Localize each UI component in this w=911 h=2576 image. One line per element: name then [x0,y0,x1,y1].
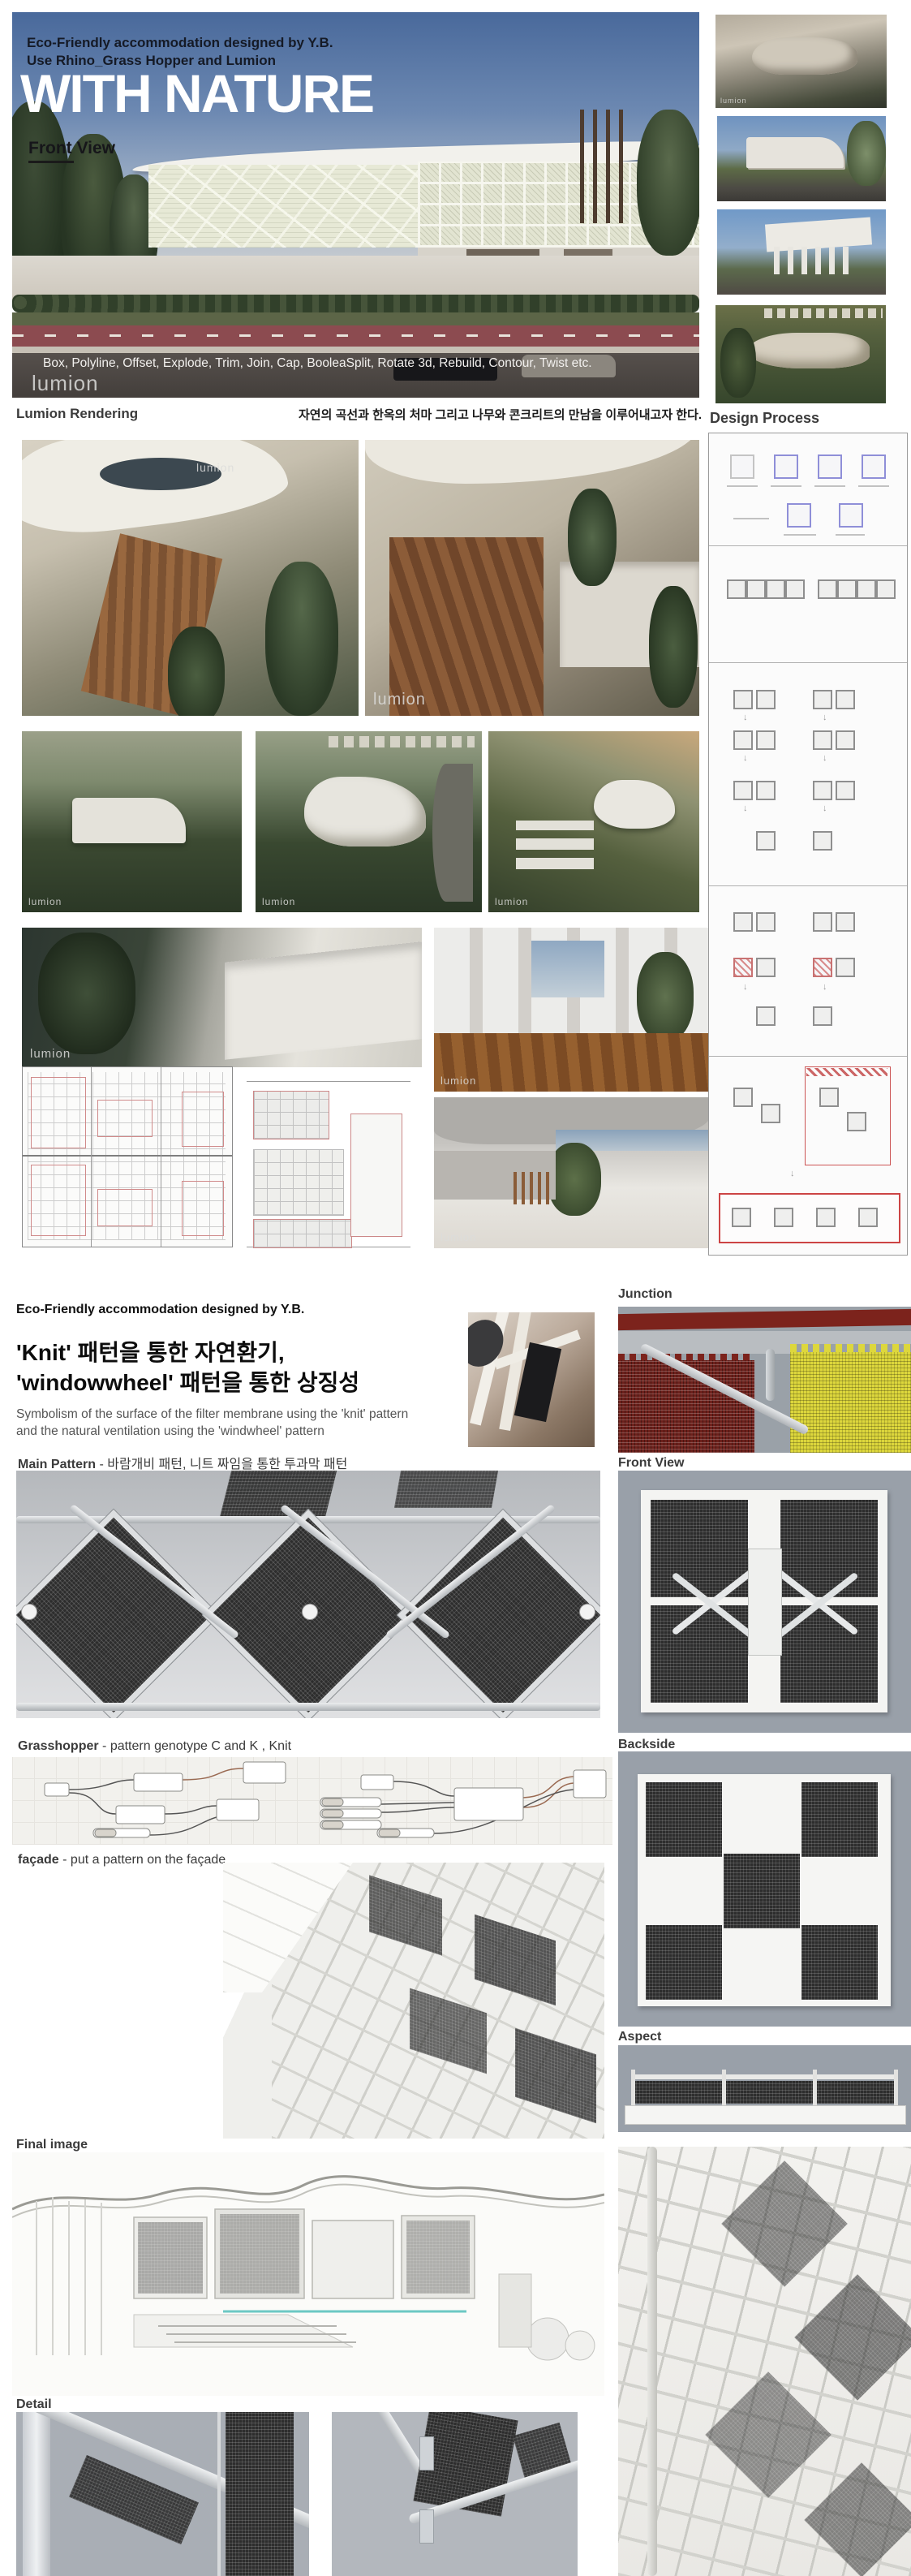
bottom-tube [16,1703,600,1711]
process-step-box [756,730,776,750]
process-step-box-hatched [733,958,753,977]
process-step-box [785,579,805,599]
front-view-section-label: Front View [618,1456,685,1471]
process-step-box [732,1208,751,1227]
process-step-box [813,912,832,932]
process-step-box [819,1088,839,1107]
junction-image [618,1307,911,1453]
render-aerial-canopy-1: lumion [22,440,359,716]
thumb-render-aerial-dusk: lumion [715,15,887,108]
section-divider [709,545,907,546]
white-building [72,798,186,843]
thumb-render-colonnade [717,209,886,295]
lumion-watermark: lumion [196,461,234,474]
lumion-watermark: lumion [32,371,99,396]
tree [168,627,225,716]
thumb-render-road-view [717,116,886,201]
base-slab [625,2105,906,2125]
bike-lane-dashes [12,334,699,337]
process-step-box [730,454,754,479]
front-view-label: Front View [28,139,115,158]
red-outline-zone [31,1077,86,1148]
backside-label: Backside [618,1738,675,1752]
divider [23,1155,232,1157]
process-step-box [733,1088,753,1107]
road-curve [432,764,473,902]
thumb3-columns [774,247,855,274]
red-outline-zone [97,1189,153,1226]
process-step-box [836,730,855,750]
node-ball [302,1604,318,1620]
knit-top-panel [220,1471,337,1518]
cylinder-column [23,2412,50,2576]
tree [38,933,135,1054]
process-step-box [733,730,753,750]
lumion-watermark: lumion [373,691,426,709]
caption-bar [858,485,889,487]
lumion-rendering-caption: 자연의 곡선과 한옥의 처마 그리고 나무와 콘크리트의 만남을 이루어내고자 … [299,406,702,423]
palm [473,1394,546,1447]
facade-closeup-tall-image [618,2147,911,2576]
knit-mesh-yellow [790,1352,911,1453]
facade-label-bold: façade [18,1853,59,1867]
render-aerial-forest-2: lumion [256,731,482,912]
caption-bar [836,534,865,536]
curb [12,347,699,353]
down-arrow-icon: ↓ [743,753,748,763]
bolt-plate [419,2509,434,2544]
grasshopper-canvas [12,1757,612,1845]
tree [637,110,699,256]
process-step-box [818,454,842,479]
process-step-box [836,690,855,709]
detail-label: Detail [16,2397,52,2412]
main-pattern-label-rest: - 바람개비 패턴, 니트 짜임을 통한 투과막 패턴 [96,1458,347,1471]
tree [847,121,886,186]
lumion-watermark: lumion [495,896,528,907]
yellow-top-row [790,1344,911,1352]
post [894,2070,898,2105]
main-pattern-label-bold: Main Pattern [18,1458,96,1471]
canopy [22,440,291,543]
knit-cell [646,1925,722,2000]
top-rail [633,2074,896,2079]
knit-cell [801,1925,878,2000]
post [722,2070,726,2105]
process-step-box [813,831,832,851]
lumion-watermark: lumion [28,896,62,907]
knit-top-panel [394,1471,498,1508]
main-pattern-label: Main Pattern - 바람개비 패턴, 니트 짜임을 통한 투과막 패턴 [18,1453,347,1472]
process-step-box [836,781,855,800]
process-step-box [756,1006,776,1026]
lumion-watermark: lumion [30,1047,71,1061]
process-step-box [876,579,896,599]
lumion-watermark: lumion [440,1231,476,1243]
caption-bar [733,518,769,519]
process-step-box [836,958,855,977]
white-building [594,780,675,829]
canopy [365,440,699,484]
thumb1-roof [752,37,857,75]
final-image-lines [12,2152,604,2396]
process-step-box [836,912,855,932]
red-outline-box-wide [719,1193,900,1243]
hedge [12,295,699,312]
node-ball [579,1604,595,1620]
process-step-box [733,912,753,932]
portfolio-board: Eco-Friendly accommodation designed by Y… [0,0,911,2576]
cluster [253,1091,329,1139]
center-frame [748,1549,782,1656]
process-step-box [756,690,776,709]
caption-bar [771,485,801,487]
sky-patch [531,941,604,997]
page2-heading-line2: 'windowwheel' 패턴을 통한 상징성 [16,1365,359,1398]
process-step-box [766,579,785,599]
render-aerial-forest-3: lumion [488,731,699,912]
white-building [304,777,426,846]
knit-facade-patch [220,2214,299,2294]
tree [637,952,694,1041]
grasshopper-label-bold: Grasshopper [18,1739,99,1753]
node-ball [21,1604,37,1620]
front-view-underline [28,161,74,163]
joint-pin [766,1349,775,1401]
knit-cell [801,1782,878,1857]
process-step-box [816,1208,836,1227]
process-step-box [787,503,811,528]
down-arrow-icon: ↓ [823,713,827,722]
tree [720,328,756,398]
knit-cell [724,1854,800,1928]
lumion-watermark: lumion [262,896,295,907]
final-image-render [12,2152,604,2396]
page2-subtext-line1: Symbolism of the surface of the filter m… [16,1407,408,1422]
cluster [253,1219,352,1248]
red-outline-zone [31,1165,86,1236]
lumion-watermark: lumion [440,1075,476,1087]
process-step-box [756,781,776,800]
thumb4-city-strip [764,308,883,318]
lumion-watermark: lumion [720,97,747,105]
city-strip [329,736,475,747]
louver [514,1172,549,1204]
render-terrace-canopy-2: lumion [365,440,699,716]
facade-label-rest: - put a pattern on the façade [59,1853,226,1867]
detail-image-1 [16,2412,309,2576]
facade-pinwheel-panel [148,165,418,248]
knit-panel [226,2412,294,2576]
page2-heading-line1: 'Knit' 패턴을 통한 자연환기, [16,1335,285,1368]
aspect-label: Aspect [618,2030,661,2044]
page2-subtext-line2: and the natural ventilation using the 'w… [16,1424,324,1439]
process-step-box [727,579,746,599]
tree [568,489,617,586]
main-pattern-image [16,1471,600,1718]
section-divider [709,1056,907,1057]
facade-perspective-image [223,1863,604,2139]
red-outline-zone [350,1114,402,1237]
frame-line [247,1081,410,1082]
process-step-box-hatched [813,958,832,977]
vertical-tube [647,2147,657,2576]
louver-screen [580,110,632,223]
design-process-title: Design Process [710,410,819,427]
banner-headline: WITH NATURE [20,62,373,124]
thumb2-building [746,137,844,168]
process-step-box [839,503,863,528]
facade-label: façade - put a pattern on the façade [18,1853,226,1867]
divider [91,1067,92,1247]
down-arrow-icon: ↓ [743,713,748,722]
down-arrow-icon: ↓ [790,1169,795,1178]
grass-strip [12,312,699,325]
grasshopper-wires [12,1757,612,1845]
process-step-box [858,1208,878,1227]
frame-line [217,2412,221,2576]
post [631,2070,635,2105]
knit-diamond [397,1510,600,1718]
process-step-box [813,690,832,709]
cluster [253,1149,344,1216]
section-divider [709,885,907,886]
process-step-box [857,579,876,599]
white-wall [225,941,422,1060]
pattern-plan-diagram-2 [247,1079,410,1250]
backside-image [618,1751,911,2027]
process-step-box [756,831,776,851]
rhino-tools-text: Box, Polyline, Offset, Explode, Trim, Jo… [43,356,592,371]
process-step-box [862,454,886,479]
caption-bar [784,534,816,536]
photo-hand-holding-pattern [468,1312,595,1447]
grasshopper-label-rest: - pattern genotype C and K , Knit [99,1739,291,1753]
down-arrow-icon: ↓ [823,982,827,992]
design-process-panel: ↓ ↓ ↓ ↓ ↓ ↓ ↓ ↓ ↓ [708,433,908,1256]
down-arrow-icon: ↓ [743,803,748,813]
process-step-box [813,730,832,750]
process-step-box [761,1104,780,1123]
caption-bar [727,485,758,487]
lumion-rendering-label: Lumion Rendering [16,406,138,422]
process-step-box [756,958,776,977]
red-roof-band [618,1309,911,1330]
wood-deck [389,537,544,716]
process-step-box [813,1006,832,1026]
banner-front-view-render: Eco-Friendly accommodation designed by Y… [12,12,699,398]
tree [649,586,698,708]
process-step-box [774,454,798,479]
process-step-box [756,912,776,932]
caption-bar [814,485,845,487]
white-villas [516,821,594,869]
knit-facade-patch [138,2222,203,2294]
process-step-box [733,781,753,800]
process-step-box [837,579,857,599]
grasshopper-label: Grasshopper - pattern genotype C and K ,… [18,1739,291,1754]
down-arrow-icon: ↓ [823,803,827,813]
red-top-row [618,1354,754,1360]
process-step-box [746,579,766,599]
bolt-plate [419,2436,434,2470]
front-view-image [618,1471,911,1733]
mesh-band [633,2081,896,2104]
knit-cell [646,1782,722,1857]
junction-label: Junction [618,1287,673,1302]
knit-facade-patch [406,2221,470,2294]
render-courtyard: lumion [434,1097,710,1248]
render-wall-trees: lumion [22,928,422,1067]
page2-title: Eco-Friendly accommodation designed by Y… [16,1303,304,1317]
render-interior-cylinders: lumion [434,928,710,1092]
process-step-box [847,1112,866,1131]
banner-title-line1: Eco-Friendly accommodation designed by Y… [27,35,333,51]
red-outline-zone [182,1092,224,1147]
detail-image-2 [332,2412,578,2576]
aspect-image [618,2045,911,2132]
process-step-box [818,579,837,599]
red-outline-zone [97,1100,153,1137]
red-outline-zone [182,1181,224,1236]
pattern-plan-diagram-1 [22,1066,233,1247]
divider [161,1067,161,1247]
process-step-box [813,781,832,800]
thumb-render-canopy-forest [715,305,886,403]
post [813,2070,817,2105]
tree [265,562,338,716]
final-image-label: Final image [16,2138,88,2152]
render-aerial-forest-1: lumion [22,731,242,912]
down-arrow-icon: ↓ [823,753,827,763]
thumb4-canopy [748,333,870,368]
down-arrow-icon: ↓ [743,982,748,992]
process-step-box [733,690,753,709]
process-step-box [774,1208,793,1227]
section-divider [709,662,907,663]
